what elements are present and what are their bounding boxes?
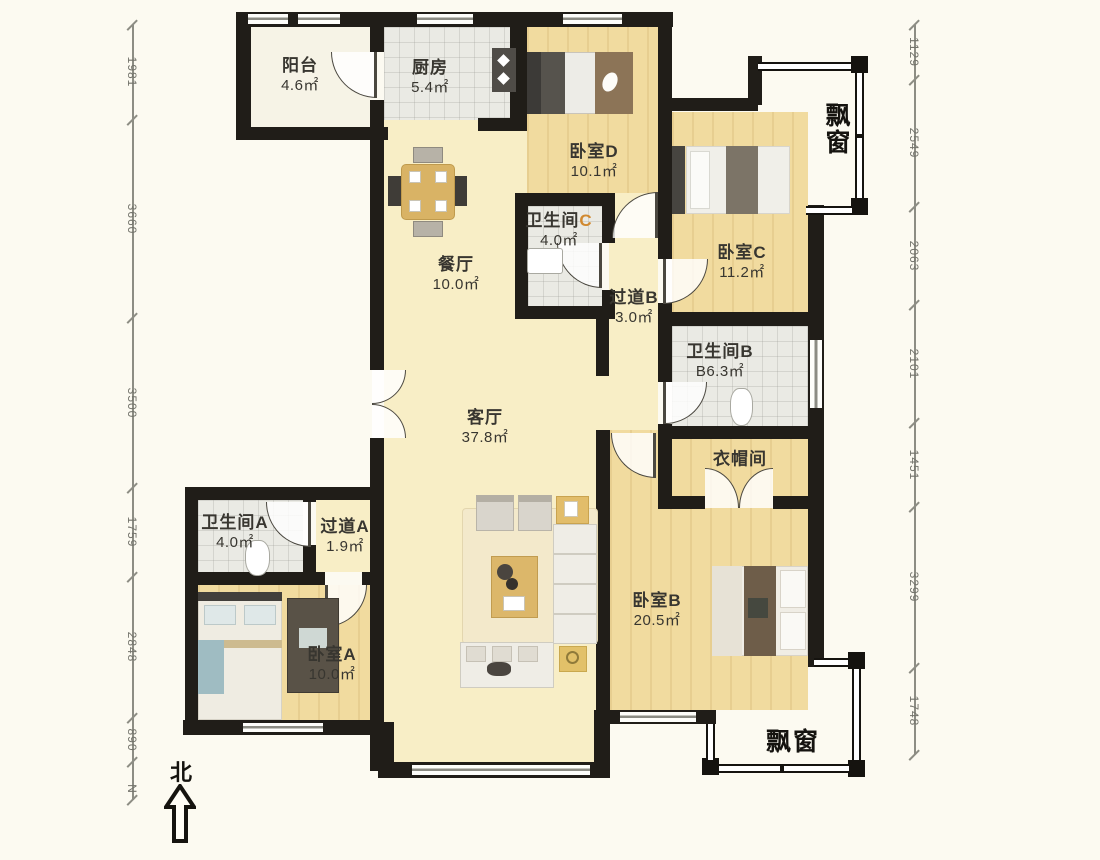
dimension-value: 890 [125,728,139,751]
wall [370,27,384,52]
room-label-dining: 餐厅 10.0㎡ [433,254,480,294]
room-name: 厨房 [411,57,449,78]
bed-b-blanket-edge [712,566,742,656]
room-label-bathroom-b: 卫生间B B6.3㎡ [686,341,753,381]
plate [435,171,447,183]
toilet [527,248,563,274]
room-area: B6.3㎡ [686,362,753,381]
room-area: 10.1㎡ [569,162,618,181]
wall [236,127,388,140]
room-name-text: 卫生间 [525,211,579,230]
bed-a-stripe [224,640,282,648]
room-label-bedroom-d: 卧室D 10.1㎡ [569,141,618,181]
door-bedroom-c-leaf [663,259,666,304]
dimension-n-mark: N [125,784,139,794]
wall [596,430,610,712]
dimension-value: 1748 [907,696,921,727]
bay-window-frame [702,758,719,775]
room-name: 餐厅 [433,254,480,275]
wall [658,426,824,439]
door-bathroom-a-leaf [308,502,311,547]
bay-window-frame [851,56,868,73]
wall [658,12,672,259]
dimension-value: 1129 [907,37,921,67]
bay-window-frame [848,652,865,669]
room-area: 37.8㎡ [462,428,509,447]
bed-b-pillow [780,612,806,650]
window [417,14,473,24]
room-label-living: 客厅 37.8㎡ [462,407,509,447]
window [298,14,340,24]
room-name: 卫生间A [201,512,268,533]
armchair [476,495,514,531]
dimension-value: 2063 [907,241,921,272]
wall [808,205,824,667]
bed-d-pillow-zone [541,52,565,114]
bay-window-frame [851,198,868,215]
side-table-paper [564,501,578,517]
dining-chair [413,221,443,237]
bay-window-frame [706,724,715,760]
bed-b-pillow [780,570,806,608]
room-area: 3.0㎡ [609,308,658,327]
dimension-value: 2848 [125,632,139,663]
wall [658,326,672,382]
dimension-value: 2101 [907,349,921,380]
floor-plan: 阳台 4.6㎡ 厨房 5.4㎡ 卧室D 10.1㎡ 卫生间C 4.0㎡ 过道B … [0,0,1100,860]
wall [515,193,612,206]
room-name: 卧室C [717,242,766,263]
bed-a-pillow [244,605,276,625]
bay-window-frame [852,669,861,760]
window [620,712,696,722]
wall [478,118,527,131]
room-name: 卧室A [307,644,356,665]
wall [596,306,609,376]
bay-window-label-top: 飘窗 [818,102,854,156]
window [248,14,288,24]
wall [362,572,378,585]
dimension-value: 1981 [125,57,139,88]
bed-d-headboard [527,52,541,114]
coffee-table-bowl [506,578,518,590]
bed-c-blanket [726,146,758,214]
dining-chair [413,147,443,163]
north-arrow-icon [164,784,196,844]
room-name: 卧室B [632,590,681,611]
bed-a-pillow [204,605,236,625]
wall [658,496,705,509]
wall [658,98,758,111]
stool-ring [566,651,579,664]
toilet [730,388,753,426]
dimension-value: 2549 [907,128,921,159]
window [563,14,622,24]
plate [409,200,421,212]
bay-window-frame [855,134,864,138]
dimension-value: 1451 [907,450,921,481]
room-name-suffix: C [579,211,592,230]
bay-window-frame [848,760,865,777]
door-bedroom-d-leaf [655,192,658,238]
armchair [518,495,552,531]
room-name: 客厅 [462,407,509,428]
bay-window-frame [758,62,853,71]
bay-window-frame [780,764,784,773]
plate [409,171,421,183]
sofa-pillow [492,646,512,662]
bed-c-headboard [672,146,685,214]
room-name: 卫生间C [525,210,592,231]
room-name: 卧室D [569,141,618,162]
dimension-value: 3299 [907,572,921,603]
bay-window-frame [814,658,850,667]
sofa-pillow [518,646,538,662]
room-area: 10.0㎡ [433,275,480,294]
room-name: 过道B [609,287,658,308]
room-label-kitchen: 厨房 5.4㎡ [411,57,449,97]
room-label-bedroom-c: 卧室C 11.2㎡ [717,242,766,282]
window [810,340,822,408]
bed-c-pillow [690,151,710,209]
room-area: 4.0㎡ [201,533,268,552]
room-label-hallway-b: 过道B 3.0㎡ [609,287,658,327]
dimension-value: 3660 [125,204,139,235]
room-area: 11.2㎡ [717,263,766,282]
dimension-value: 3500 [125,388,139,419]
wall [185,487,198,735]
bed-a-headboard [198,592,282,601]
wall [303,487,316,502]
window [412,765,590,775]
bed-b-laptop [748,598,768,618]
room-name: 阳台 [281,55,319,76]
wall [658,312,824,326]
room-area: 1.9㎡ [320,537,369,556]
room-label-balcony: 阳台 4.6㎡ [281,55,319,95]
coffee-table-book [503,596,525,611]
room-name: 衣帽间 [713,449,767,470]
wall [303,545,316,572]
room-label-bedroom-a: 卧室A 10.0㎡ [307,644,356,684]
room-area: 4.6㎡ [281,76,319,95]
room-label-closet: 衣帽间 [713,449,767,470]
door-balcony-leaf [374,52,377,98]
door-bedroom-b-leaf [653,433,656,478]
room-label-bathroom-a: 卫生间A 4.0㎡ [201,512,268,552]
wall [185,487,383,500]
sofa-pillow [466,646,486,662]
door-bathroom-c-leaf [599,243,602,288]
room-area: 4.0㎡ [525,231,592,250]
room-label-bathroom-c: 卫生间C 4.0㎡ [525,210,592,250]
window [243,723,323,732]
room-name: 卫生间B [686,341,753,362]
door-bathroom-b-leaf [663,382,666,424]
room-area: 20.5㎡ [632,611,681,630]
room-name: 过道A [320,516,369,537]
north-label: 北 [170,755,192,787]
wall [236,12,251,140]
room-label-bedroom-b: 卧室B 20.5㎡ [632,590,681,630]
bed-a-blanket [198,640,224,694]
sofa-tray [487,662,511,676]
wall [370,100,384,127]
room-label-hallway-a: 过道A 1.9㎡ [320,516,369,556]
bay-window-label-bottom: 飘窗 [766,722,820,758]
dimension-value: 1759 [125,517,139,548]
plate [435,200,447,212]
room-area: 10.0㎡ [307,665,356,684]
bay-window-frame [806,206,852,215]
sofa [553,524,597,644]
room-area: 5.4㎡ [411,78,449,97]
wall [370,128,384,370]
